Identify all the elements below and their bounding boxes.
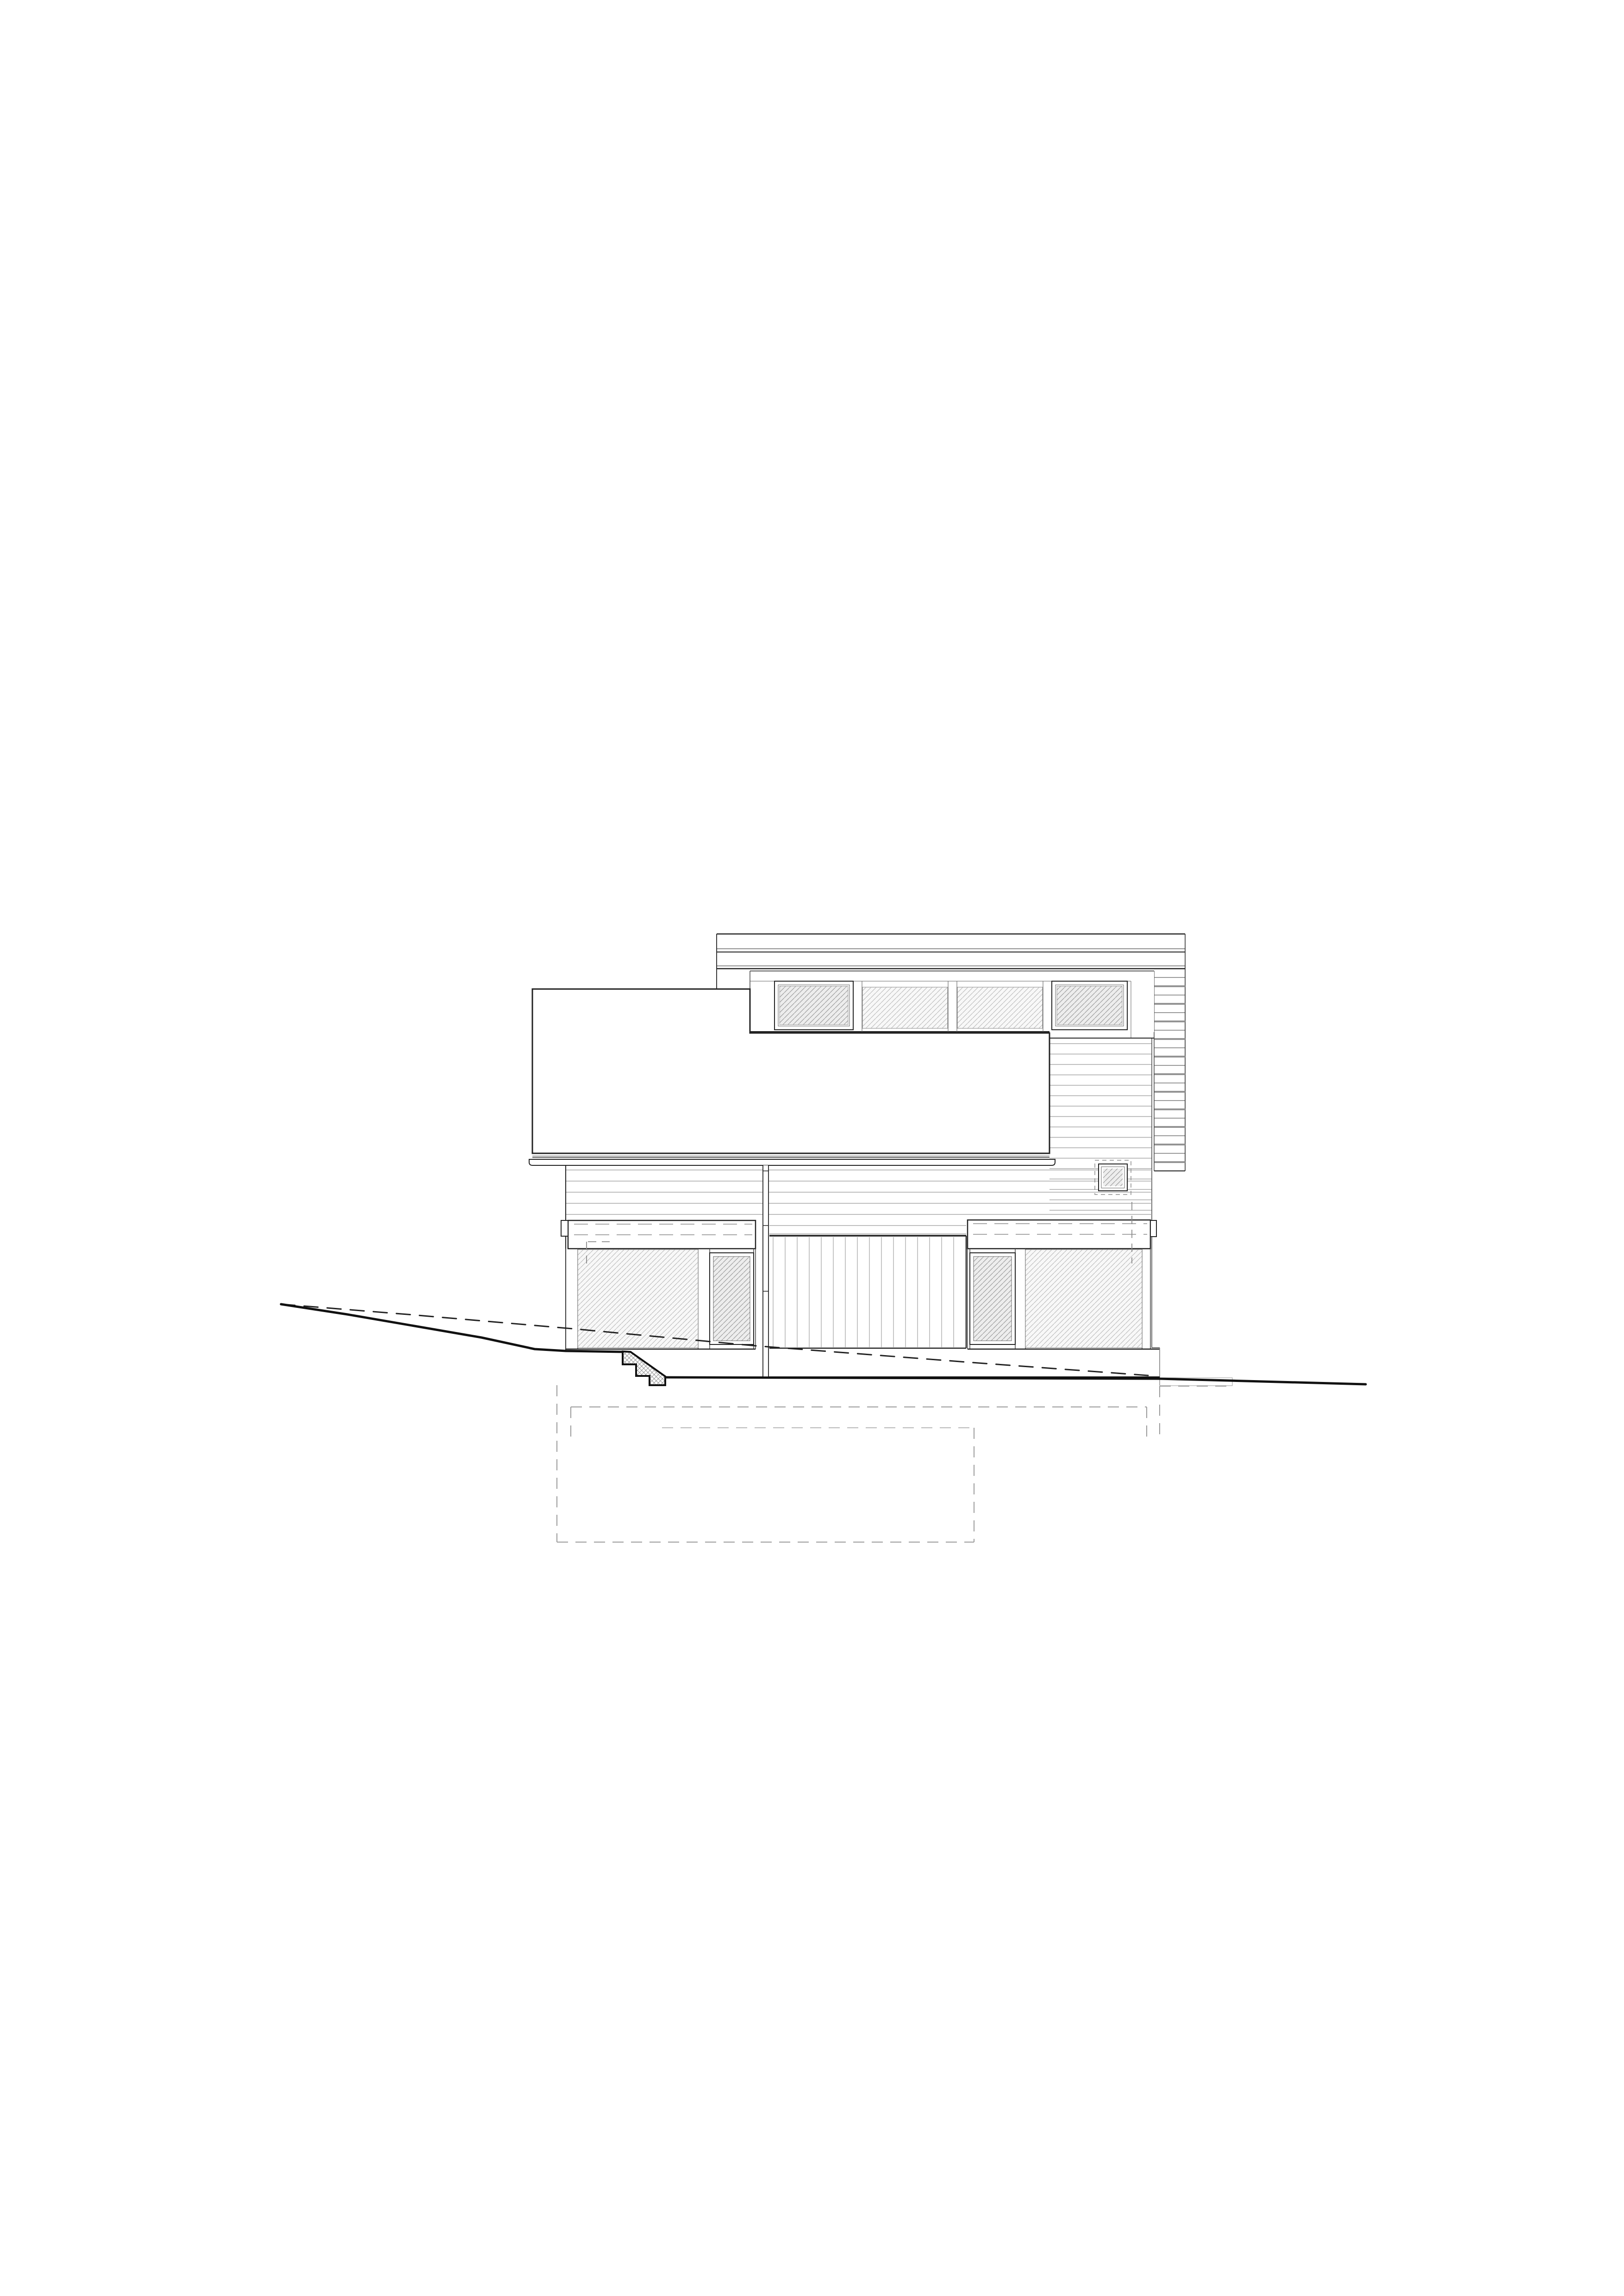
drawing-sheet (0, 0, 1624, 2296)
vertical-siding-bay (769, 1236, 966, 1348)
clerestory-window-sash (775, 981, 853, 1030)
clerestory-window-sash (1052, 981, 1127, 1030)
downspout (763, 1165, 768, 1377)
right-header-band (968, 1220, 1156, 1249)
lower-window-fixed (1025, 1250, 1142, 1348)
clerestory-window-fixed (957, 981, 1043, 1032)
gutter (529, 1159, 1055, 1165)
lower-window-sash (970, 1253, 1015, 1344)
elevation-drawing (0, 0, 1624, 2296)
clerestory-window-fixed (862, 981, 948, 1032)
left-header-band (561, 1220, 756, 1249)
lower-window-sash (710, 1253, 754, 1344)
small-vent-window (1095, 1160, 1131, 1195)
lower-window-fixed (578, 1250, 698, 1348)
